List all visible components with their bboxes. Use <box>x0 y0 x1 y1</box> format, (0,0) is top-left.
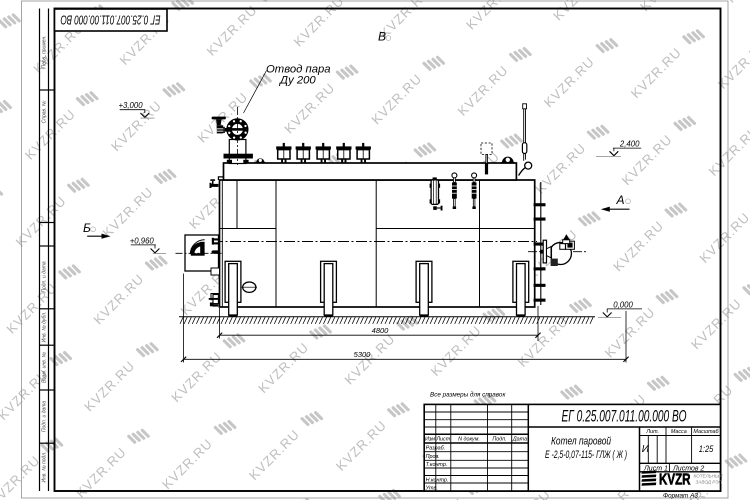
svg-text:4800: 4800 <box>372 326 390 335</box>
svg-text:Б: Б <box>83 221 91 235</box>
svg-text:ЗАВОД РЭП: ЗАВОД РЭП <box>696 480 723 485</box>
svg-text:Лист: Лист <box>435 437 450 443</box>
svg-text:Утв.: Утв. <box>425 486 438 492</box>
svg-text:Е -2,5-0,07-115- ГЛЖ ( Ж ): Е -2,5-0,07-115- ГЛЖ ( Ж ) <box>545 449 627 461</box>
svg-text:Масштаб: Масштаб <box>693 429 719 435</box>
svg-text:Разраб.: Разраб. <box>426 446 446 452</box>
svg-text:Т.контр.: Т.контр. <box>426 462 448 468</box>
svg-text:+3,000: +3,000 <box>119 101 144 110</box>
svg-text:В: В <box>378 30 386 44</box>
svg-text:Пров.: Пров. <box>426 454 440 460</box>
svg-text:Взам. инв. №: Взам. инв. № <box>42 351 48 383</box>
svg-text:Формат А3: Формат А3 <box>663 493 698 500</box>
svg-text:Масса: Масса <box>671 429 687 435</box>
svg-text:И: И <box>642 444 650 455</box>
svg-text:N докум.: N докум. <box>458 437 480 443</box>
svg-text:Инв. № дубл.: Инв. № дубл. <box>42 312 48 343</box>
svg-text:Все размеры для справок: Все размеры для справок <box>430 391 506 399</box>
svg-text:Подп. и дата: Подп. и дата <box>42 401 48 433</box>
svg-text:2,400: 2,400 <box>619 139 640 148</box>
svg-text:Подп.: Подп. <box>492 437 506 443</box>
svg-text:Котел паровой: Котел паровой <box>551 436 611 448</box>
svg-text:КОТЕЛЬНЫЙ: КОТЕЛЬНЫЙ <box>694 472 724 479</box>
svg-text:А: А <box>616 193 625 207</box>
svg-text:Ду 200: Ду 200 <box>278 75 316 87</box>
svg-text:0,000: 0,000 <box>613 301 633 310</box>
svg-text:Н.контр.: Н.контр. <box>426 478 449 484</box>
svg-text:Перв. примен.: Перв. примен. <box>42 35 48 68</box>
svg-text:ЕГ 0.25.007.011.00.000 ВО: ЕГ 0.25.007.011.00.000 ВО <box>61 12 161 27</box>
svg-text:Лит.: Лит. <box>645 429 659 435</box>
svg-text:ЕГ 0.25.007.011.00.000 ВО: ЕГ 0.25.007.011.00.000 ВО <box>562 407 687 425</box>
svg-text:5300: 5300 <box>354 350 372 359</box>
svg-text:Дата: Дата <box>512 437 527 443</box>
svg-text:Справ. №: Справ. № <box>42 100 48 123</box>
svg-text:+0,960: +0,960 <box>130 236 155 245</box>
svg-text:Подп. и дата: Подп. и дата <box>42 261 48 293</box>
svg-text:Изм: Изм <box>425 437 435 443</box>
svg-text:KVZR: KVZR <box>659 472 691 489</box>
svg-text:Инв. № подл.: Инв. № подл. <box>42 451 48 482</box>
svg-text:1:25: 1:25 <box>699 444 714 455</box>
